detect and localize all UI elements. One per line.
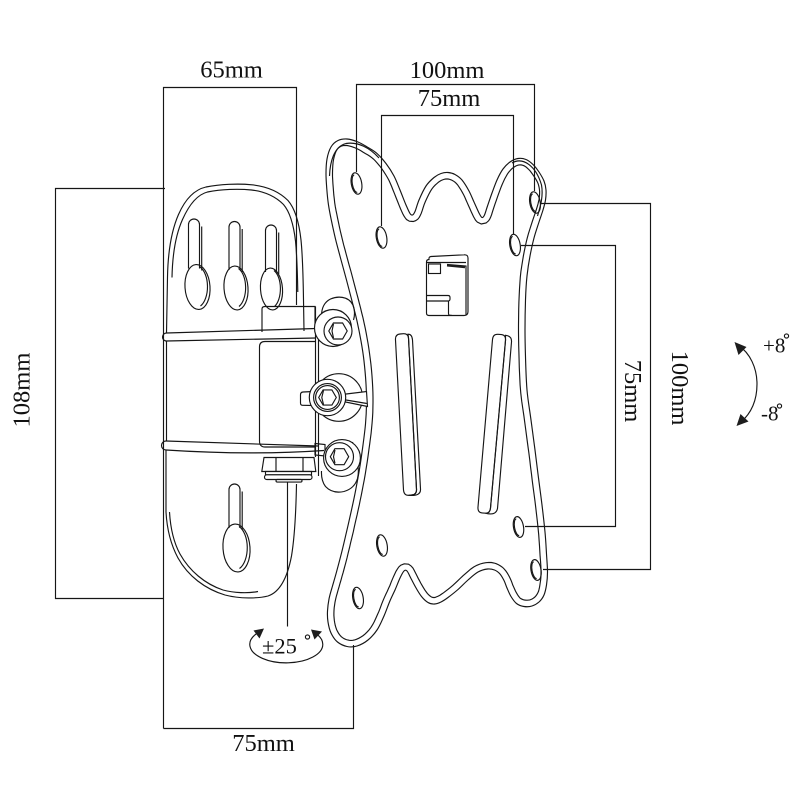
svg-text:100mm: 100mm <box>666 351 693 426</box>
svg-text:±25: ±25 <box>262 634 297 659</box>
svg-text:75mm: 75mm <box>619 360 646 423</box>
svg-text:100mm: 100mm <box>410 57 485 84</box>
svg-text:108mm: 108mm <box>9 353 36 428</box>
svg-text:65mm: 65mm <box>200 57 263 84</box>
svg-text:+8: +8 <box>763 334 785 358</box>
svg-text:75mm: 75mm <box>418 85 481 112</box>
svg-text:75mm: 75mm <box>232 730 295 757</box>
svg-text:-8: -8 <box>761 402 779 426</box>
